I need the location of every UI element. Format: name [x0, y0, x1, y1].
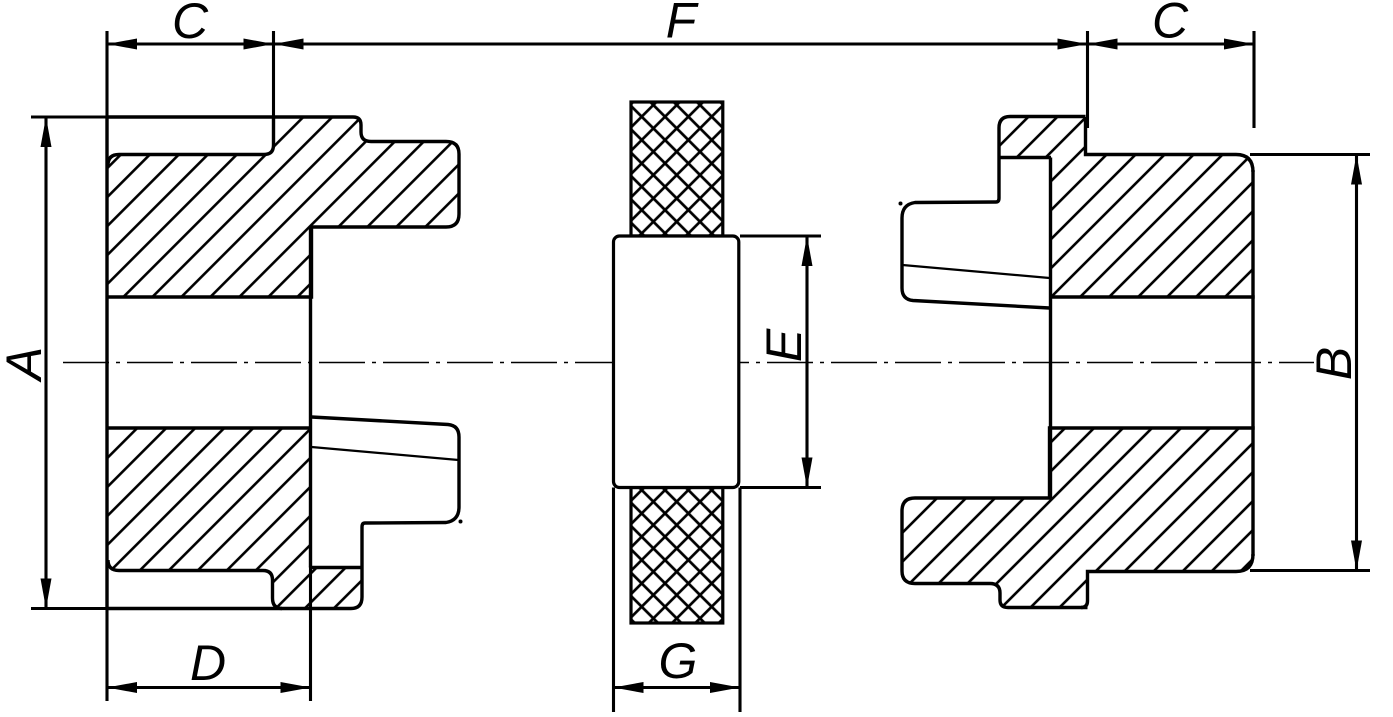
svg-text:F: F	[666, 0, 699, 49]
svg-text:C: C	[1152, 0, 1189, 49]
svg-text:A: A	[0, 347, 52, 383]
svg-text:G: G	[659, 633, 698, 689]
svg-text:D: D	[190, 635, 226, 691]
svg-text:C: C	[172, 0, 209, 49]
svg-text:E: E	[756, 328, 812, 362]
svg-text:B: B	[1306, 347, 1362, 380]
